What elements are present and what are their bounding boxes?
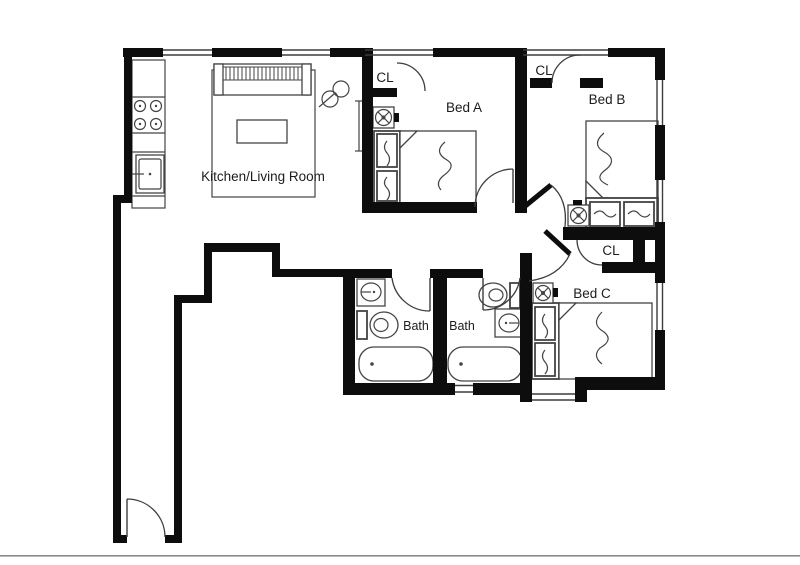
mattress <box>586 121 658 198</box>
room-label-bed-c: Bed C <box>573 286 611 301</box>
pillow <box>377 134 397 167</box>
sofa <box>214 64 311 95</box>
sofa-arm-right <box>302 64 311 95</box>
entry-door-arc <box>127 499 165 537</box>
bed-c <box>532 303 652 379</box>
pillow <box>377 171 397 201</box>
floorplan-canvas: Kitchen/Living Room Bed A Bed B Bed C Ba… <box>0 0 800 565</box>
ceiling-fan-icon <box>533 283 558 303</box>
pillow <box>535 307 555 340</box>
coffee-table <box>237 120 287 143</box>
bed-c-door-arc <box>529 254 570 281</box>
sofa-back <box>223 67 302 80</box>
sink-icon <box>357 279 385 306</box>
sink-icon <box>495 309 523 337</box>
bed-b <box>586 121 658 229</box>
room-label-bath-right: Bath <box>449 319 475 333</box>
bathtub-icon <box>359 347 433 381</box>
wall-break-line <box>355 101 362 151</box>
page-edge-line <box>0 555 800 557</box>
room-label-kitchen-living: Kitchen/Living Room <box>201 169 325 184</box>
room-label-closet-a: CL <box>376 70 394 85</box>
room-label-bed-a: Bed A <box>446 100 482 115</box>
room-label-closet-c: CL <box>602 243 620 258</box>
floorplan-drawing: Kitchen/Living Room Bed A Bed B Bed C Ba… <box>0 0 800 565</box>
bathtub-icon <box>448 347 522 381</box>
bed-a <box>374 131 476 204</box>
room-label-bed-b: Bed B <box>589 92 626 107</box>
room-label-closet-b: CL <box>535 63 553 78</box>
bed-b-door-arc <box>551 185 565 227</box>
toilet-icon <box>479 283 520 308</box>
stove-icon <box>135 101 162 130</box>
bed-b-door-leaf <box>524 185 551 207</box>
toilet-tank <box>357 311 367 339</box>
closet-a-door-arc <box>397 63 425 91</box>
ceiling-fan-icon <box>373 107 399 128</box>
toilet-icon <box>357 311 398 339</box>
sofa-arm-left <box>214 64 223 95</box>
pillow <box>535 343 555 376</box>
toilet-tank <box>510 283 520 308</box>
ceiling-light-icon <box>319 81 349 107</box>
closet-c-door-arc <box>577 240 602 265</box>
closet-b-door-arc <box>552 55 580 83</box>
kitchen-sink-icon <box>130 155 164 193</box>
bed-a-door-arc <box>475 169 513 207</box>
mattress <box>400 131 476 204</box>
mattress <box>559 303 652 379</box>
bath-left-door-arc <box>392 278 430 311</box>
room-label-bath-left: Bath <box>403 319 429 333</box>
